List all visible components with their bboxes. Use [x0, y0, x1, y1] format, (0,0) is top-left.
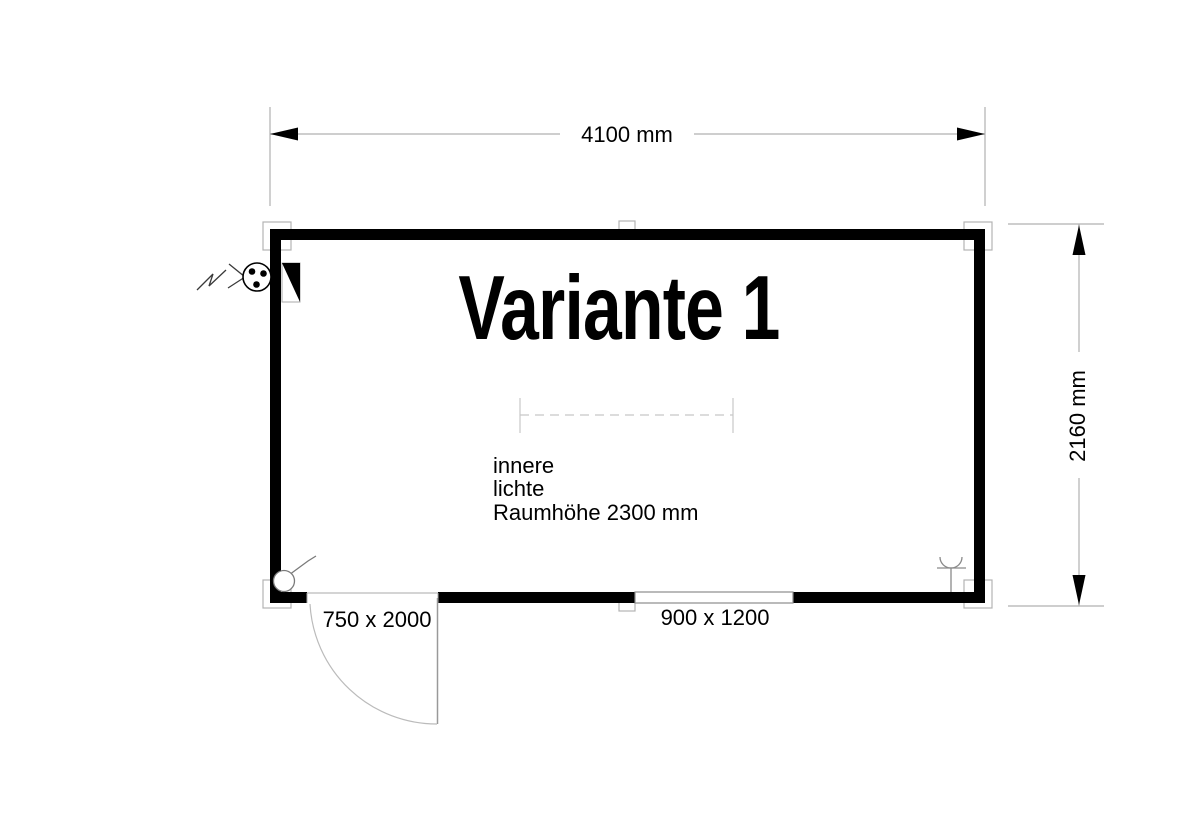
overall-depth-dimension-label: 2160 mm	[1066, 370, 1090, 462]
dimension-arrow-down-icon	[1073, 575, 1086, 605]
wall-left	[270, 229, 281, 603]
wall-right	[974, 229, 985, 603]
distribution-panel-icon	[282, 263, 300, 302]
socket-pin-1	[249, 268, 256, 275]
dimension-arrow-right-icon	[957, 128, 985, 141]
socket-pin-3	[253, 281, 260, 288]
wall-top	[270, 229, 985, 240]
floor-plan-canvas: 4100 mm 2160 mm Variante 1 innere lichte…	[0, 0, 1200, 818]
wall-bottom-left-stub	[270, 592, 307, 603]
room-height-note: innere lichte Raumhöhe 2300 mm	[493, 454, 698, 524]
wall-socket-icon	[937, 557, 966, 592]
window-size-label: 900 x 1200	[658, 606, 772, 630]
plan-title-wrap: Variante 1	[449, 263, 789, 355]
wall-bottom-right-segment	[793, 592, 985, 603]
room-height-note-line1: innere	[493, 454, 698, 477]
door-size-label: 750 x 2000	[318, 608, 436, 632]
window-symbol	[635, 592, 793, 603]
dimension-arrow-left-icon	[270, 128, 298, 141]
feed-zigzag	[197, 270, 226, 290]
room-height-note-line2: lichte	[493, 477, 698, 500]
socket-arc	[940, 557, 962, 568]
switch-lever	[291, 556, 316, 574]
plan-title: Variante 1	[458, 263, 779, 354]
socket-pin-2	[260, 270, 267, 277]
door-threshold	[307, 593, 438, 603]
dashed-reference-line	[520, 398, 733, 433]
room-height-note-line3: Raumhöhe 2300 mm	[493, 501, 698, 524]
wall-bottom-middle-segment	[438, 592, 635, 603]
feed-socket-icon	[243, 263, 271, 291]
dimension-arrow-up-icon	[1073, 225, 1086, 255]
power-feed-arrow-icon	[197, 264, 245, 290]
overall-width-dimension-label: 4100 mm	[560, 123, 694, 147]
